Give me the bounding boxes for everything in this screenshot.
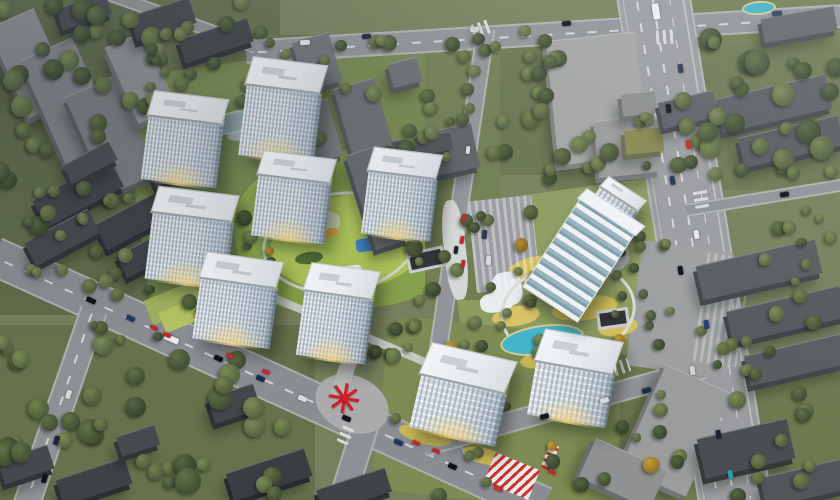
red-star-sculpture	[329, 383, 359, 413]
aerial-site-render: Aerial daytime architectural rendering o…	[0, 0, 840, 500]
sculpture-center	[341, 395, 347, 401]
landmark-layer	[0, 0, 840, 500]
